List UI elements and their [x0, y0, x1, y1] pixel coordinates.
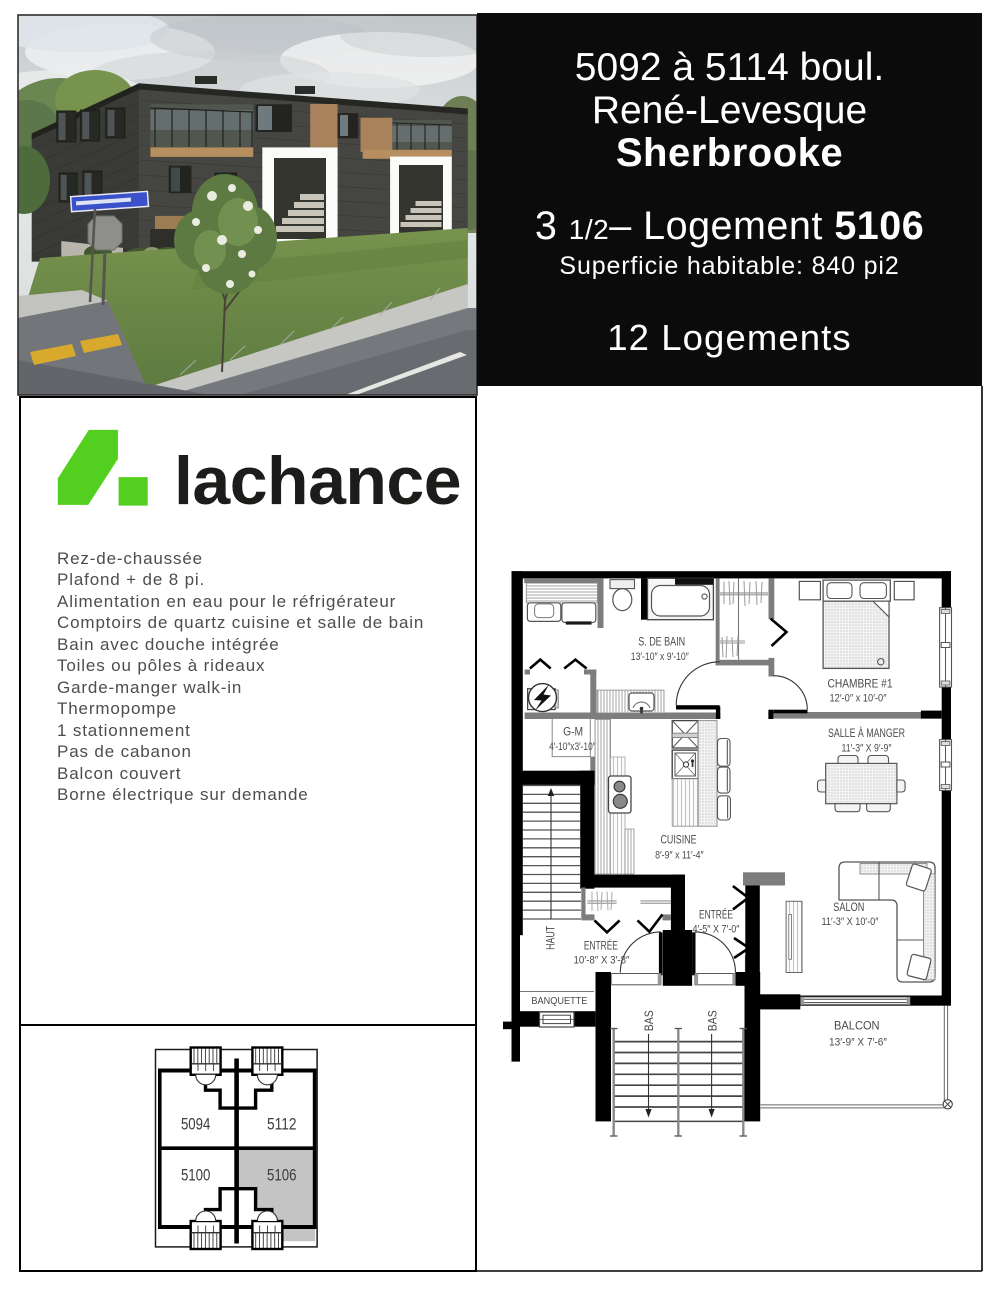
svg-text:8′-9″ x 11′-4″: 8′-9″ x 11′-4″: [655, 850, 704, 862]
svg-text:CUISINE: CUISINE: [661, 833, 697, 847]
svg-text:BALCON: BALCON: [834, 1019, 880, 1033]
svg-text:BAS: BAS: [642, 1010, 656, 1031]
svg-text:CHAMBRE #1: CHAMBRE #1: [828, 676, 893, 690]
svg-text:SALON: SALON: [833, 900, 864, 914]
svg-text:ENTRÉE: ENTRÉE: [584, 938, 618, 953]
svg-text:5100: 5100: [181, 1167, 211, 1185]
svg-text:S. DE BAIN: S. DE BAIN: [638, 634, 685, 648]
svg-text:10′-8″ X 3′-8″: 10′-8″ X 3′-8″: [574, 955, 630, 967]
svg-text:12′-0″ x 10′-0″: 12′-0″ x 10′-0″: [830, 692, 887, 704]
svg-text:5106: 5106: [267, 1167, 297, 1185]
svg-text:HAUT: HAUT: [544, 926, 558, 950]
svg-text:BANQUETTE: BANQUETTE: [531, 996, 587, 1007]
svg-text:5112: 5112: [267, 1116, 297, 1134]
svg-text:13′-10″ x 9′-10″: 13′-10″ x 9′-10″: [631, 651, 689, 663]
svg-text:11′-3″ X 9′-9″: 11′-3″ X 9′-9″: [842, 742, 892, 754]
svg-text:4′-10″x3′-10″: 4′-10″x3′-10″: [549, 741, 596, 753]
svg-text:SALLE À MANGER: SALLE À MANGER: [828, 725, 905, 740]
svg-text:G-M: G-M: [563, 725, 583, 739]
svg-text:5094: 5094: [181, 1116, 211, 1134]
svg-text:11′-3″ X 10′-0″: 11′-3″ X 10′-0″: [822, 916, 879, 928]
svg-text:4′-5″ X 7′-0″: 4′-5″ X 7′-0″: [693, 924, 740, 936]
svg-text:BAS: BAS: [705, 1010, 719, 1031]
svg-text:ENTRÉE: ENTRÉE: [699, 906, 733, 921]
svg-text:13′-9″ X 7′-6″: 13′-9″ X 7′-6″: [829, 1036, 887, 1048]
